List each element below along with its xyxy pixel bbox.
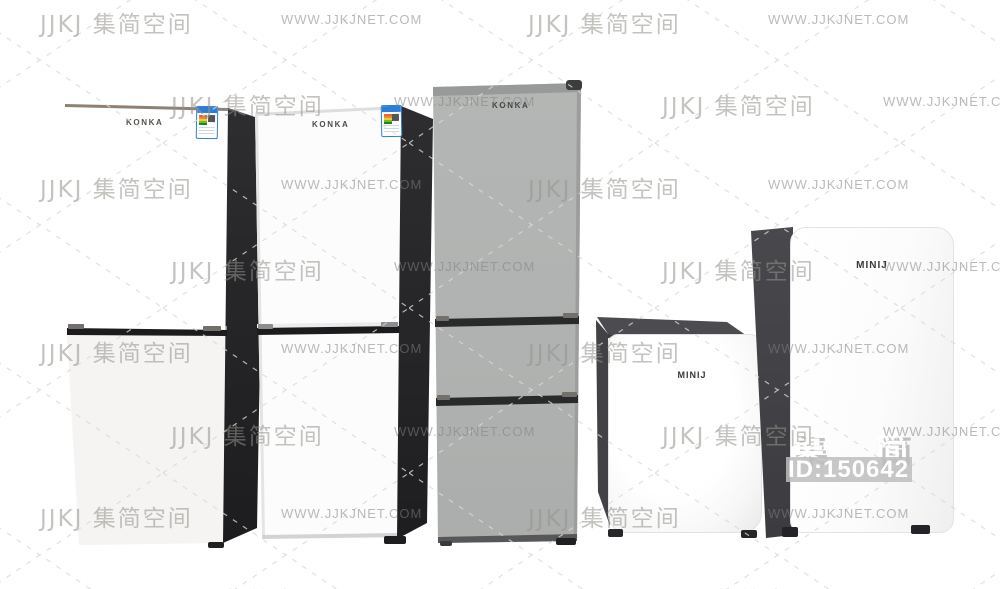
- product-render-canvas: KONKA KONKA: [0, 0, 1000, 589]
- watermark-dash-pattern: [0, 0, 1000, 589]
